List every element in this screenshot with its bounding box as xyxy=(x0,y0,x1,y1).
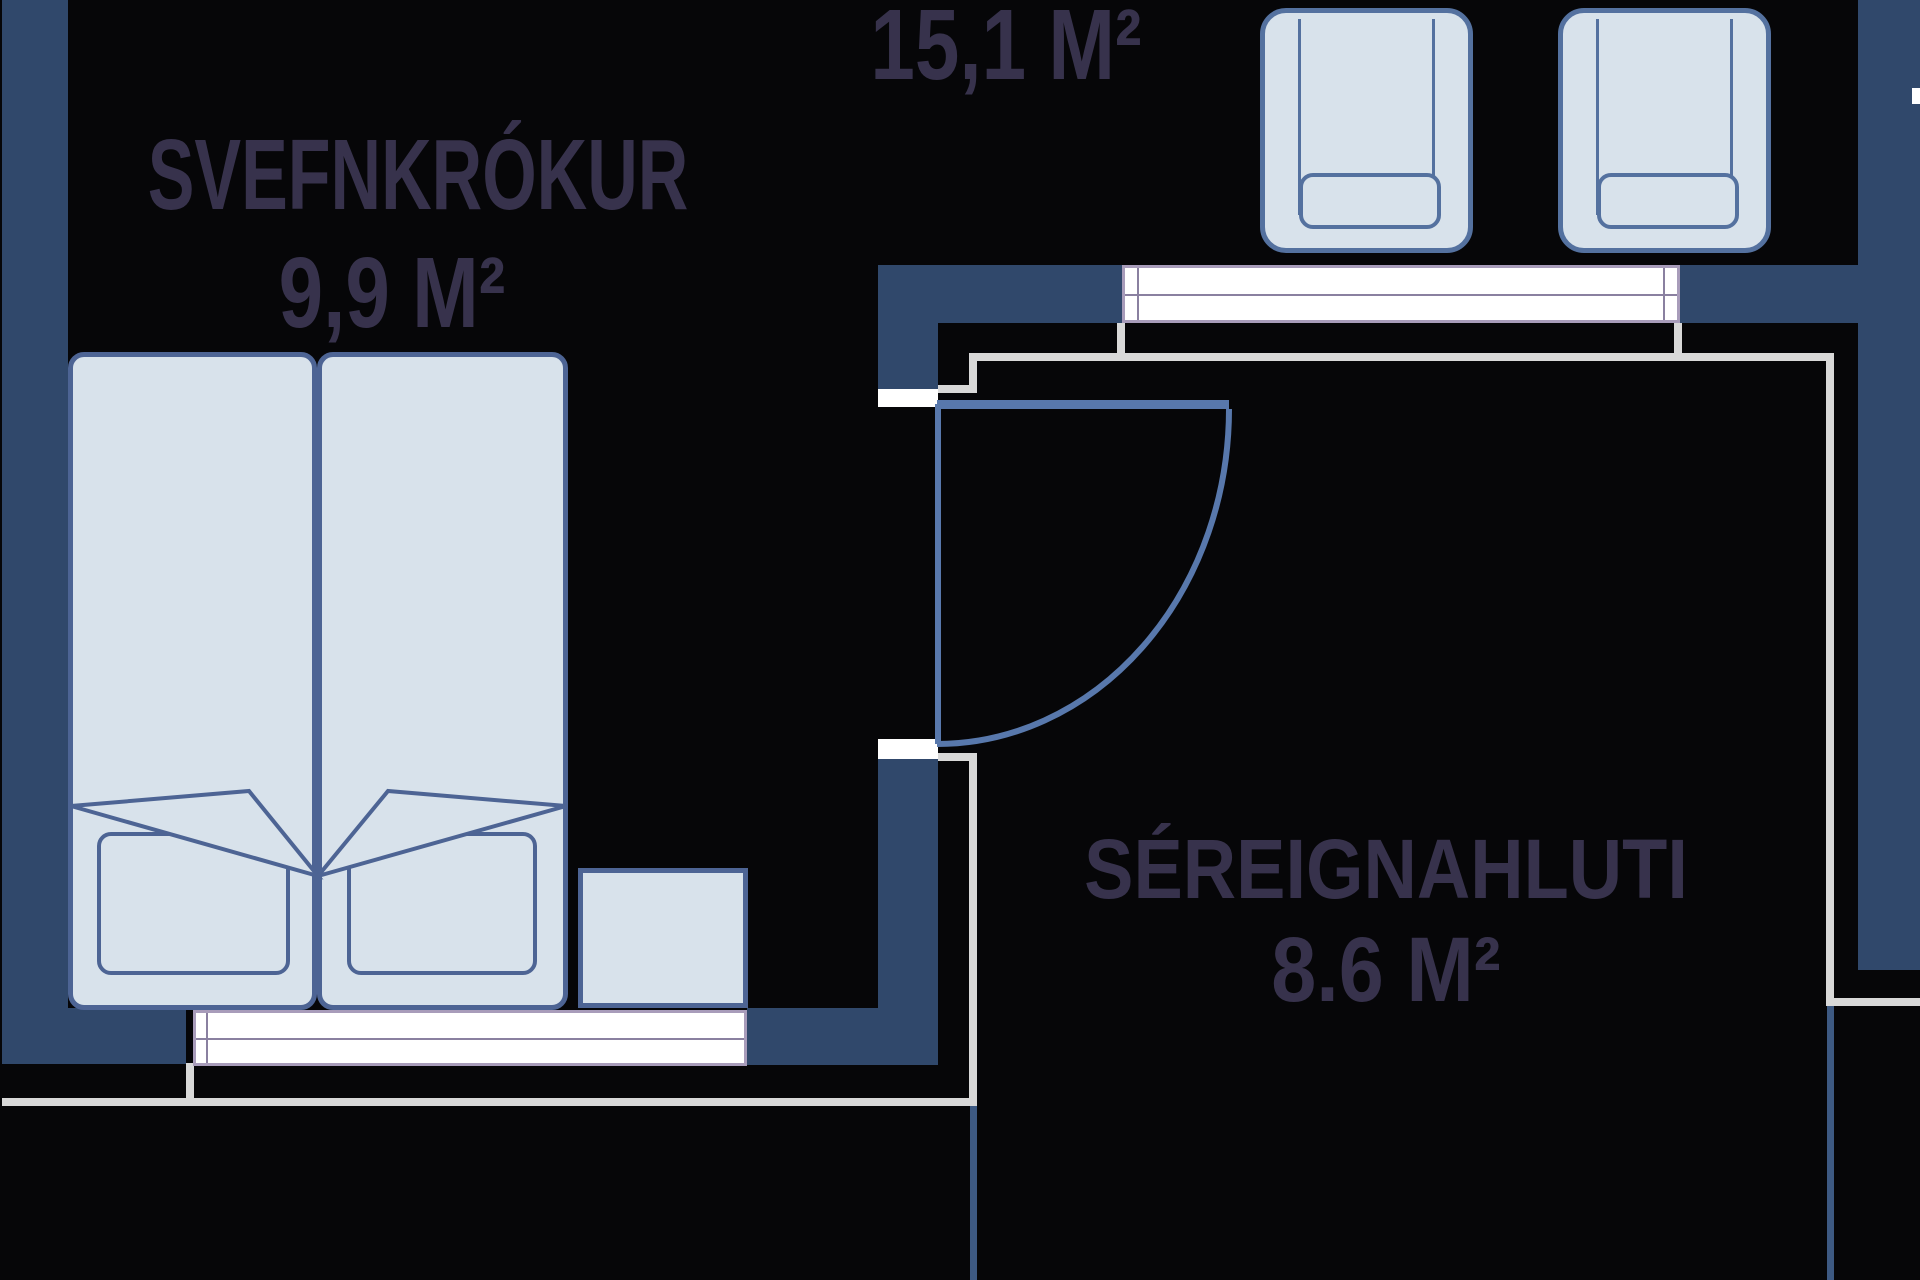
room-area-svefnkrokur: 9,9 M² xyxy=(279,243,506,343)
room-area-hall: 15,1 M² xyxy=(870,0,1141,95)
floor-plan: SVEFNKRÓKUR 9,9 M² 15,1 M² SÉREIGNAHLUTI… xyxy=(0,0,1920,1280)
door-swing-arc xyxy=(937,409,1229,744)
room-area-sereignahluti: 8.6 M² xyxy=(1271,924,1500,1016)
blanket-fold-left xyxy=(71,791,318,876)
door-leaf xyxy=(937,400,1229,409)
room-label-svefnkrokur: SVEFNKRÓKUR xyxy=(148,125,689,225)
blanket-fold-right xyxy=(318,791,566,876)
room-label-sereignahluti: SÉREIGNAHLUTI xyxy=(1084,827,1688,911)
door-closed-line xyxy=(935,404,941,744)
